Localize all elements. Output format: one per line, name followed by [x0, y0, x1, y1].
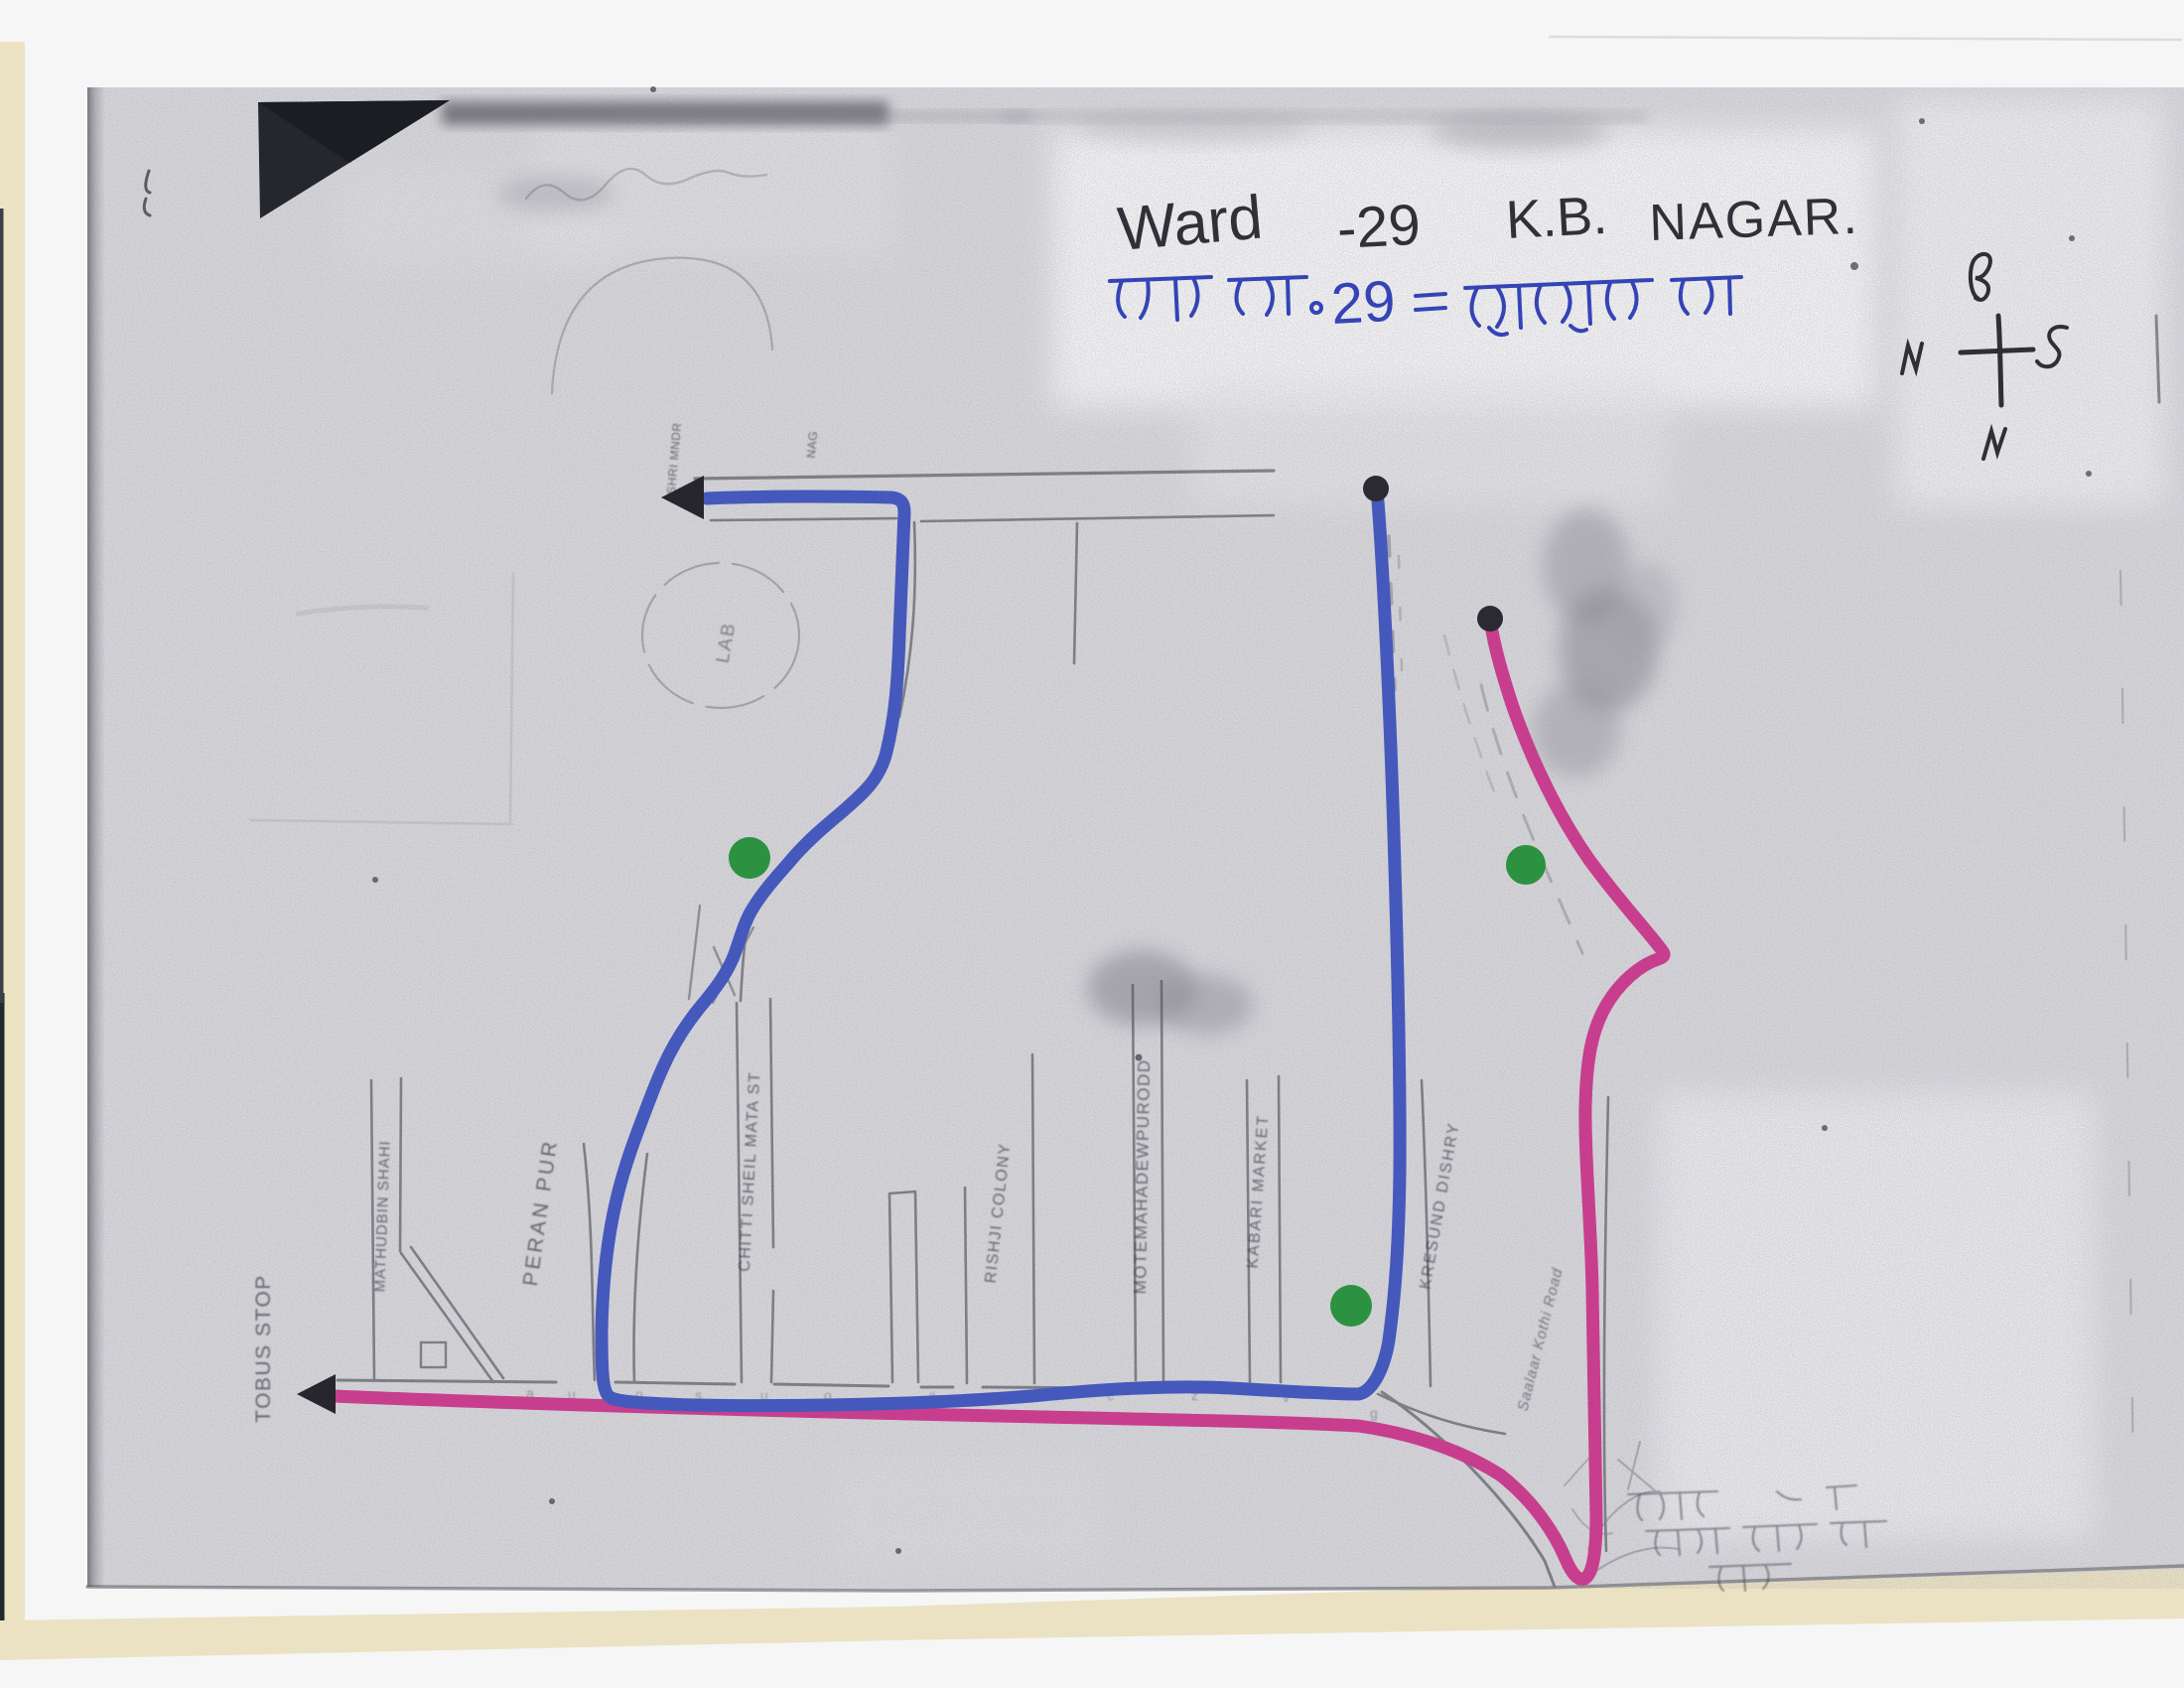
svg-text:K.B.: K.B.: [1504, 186, 1608, 250]
svg-text:Ward: Ward: [1115, 183, 1265, 263]
svg-text:NAGAR.: NAGAR.: [1648, 188, 1859, 252]
svg-text:-29: -29: [1335, 193, 1422, 261]
svg-text:NAG: NAG: [804, 430, 820, 459]
svg-text:TOBUS STOP: TOBUS STOP: [252, 1274, 275, 1423]
svg-text:29: 29: [1329, 269, 1397, 337]
svg-text:g: g: [1370, 1405, 1378, 1421]
